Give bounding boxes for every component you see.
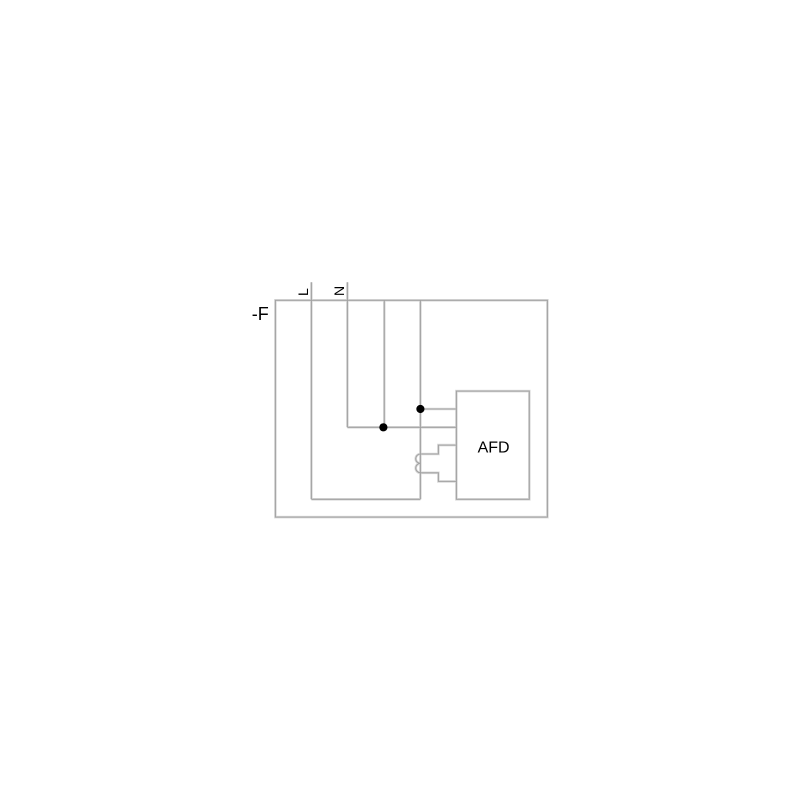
svg-text:-F: -F [252,304,269,324]
svg-text:N: N [331,286,347,296]
svg-text:L: L [295,288,311,296]
svg-text:AFD: AFD [478,439,510,456]
